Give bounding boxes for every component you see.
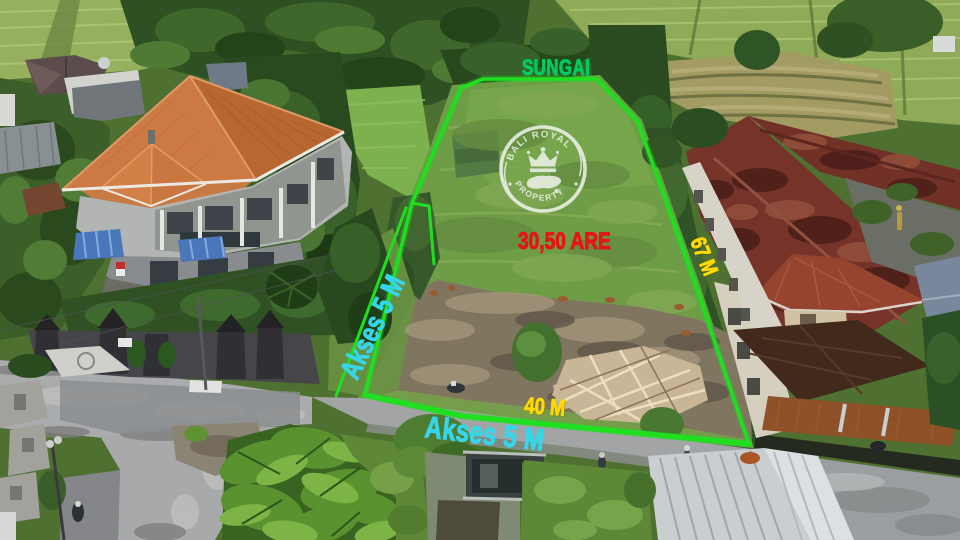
svg-text:40 M: 40 M	[524, 393, 567, 421]
svg-text:SUNGAI: SUNGAI	[522, 56, 590, 81]
svg-text:30,50 ARE: 30,50 ARE	[518, 227, 611, 255]
